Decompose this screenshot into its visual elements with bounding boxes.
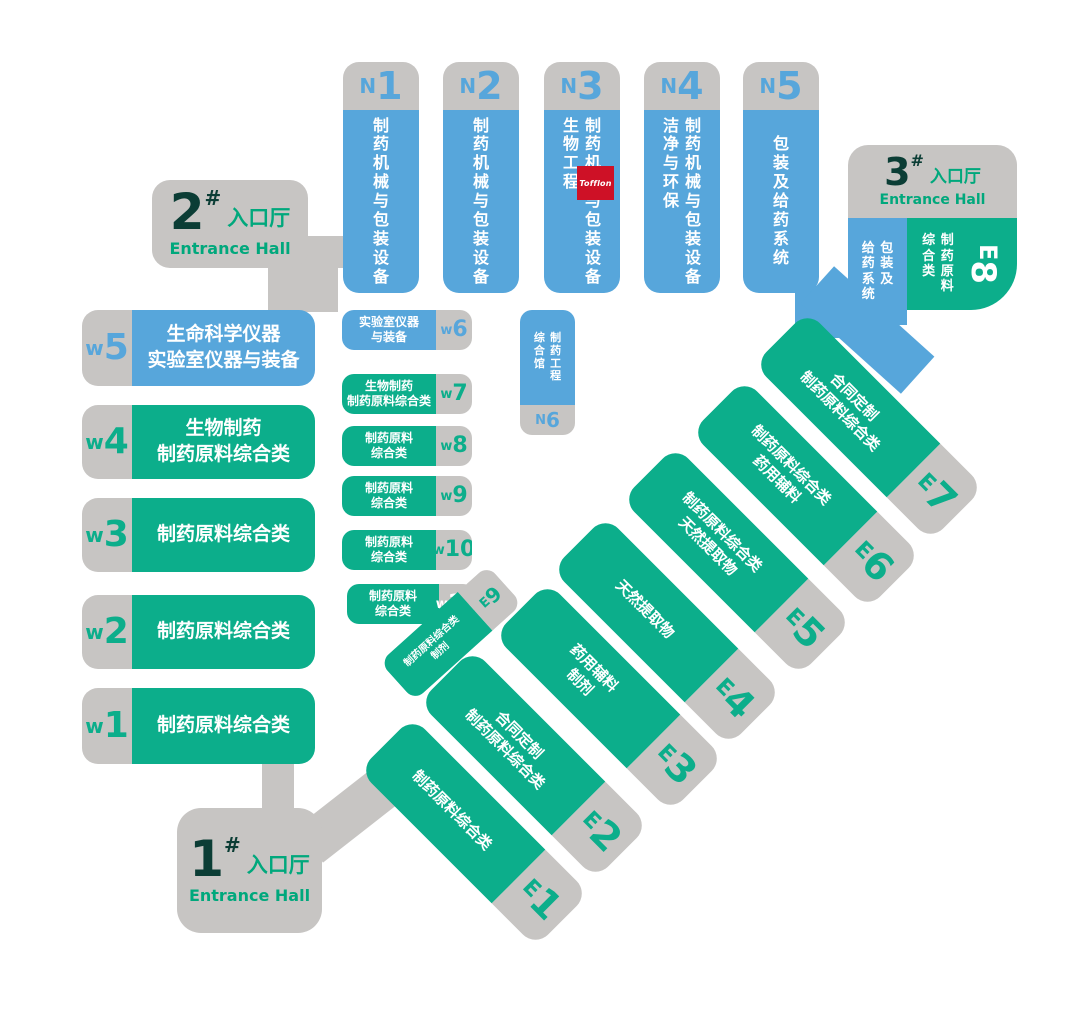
entrance-3-number: 3 xyxy=(884,155,910,189)
hall-w5-label: w5 xyxy=(82,310,132,386)
hall-w3-label: w3 xyxy=(82,498,132,572)
hall-n4-label: N4 xyxy=(644,62,720,110)
hall-w9: 制药原料综合类 w9 xyxy=(342,476,472,516)
hall-n1: N1 制药机械与包装设备 xyxy=(343,62,419,293)
hall-w3: w3 制药原料综合类 xyxy=(82,498,315,572)
tofflon-logo-text: Tofflon xyxy=(579,179,611,188)
hall-n2: N2 制药机械与包装设备 xyxy=(443,62,519,293)
hall-w7-label: w7 xyxy=(436,374,472,414)
hall-w2-label: w2 xyxy=(82,595,132,669)
hall-w7-category: 生物制药制药原料综合类 xyxy=(342,374,436,414)
hall-w6-category: 实验室仪器与装备 xyxy=(342,310,436,350)
hall-n3-category: 制药机械与包装设备生物工程 xyxy=(544,110,620,293)
hall-w9-label: w9 xyxy=(436,476,472,516)
entrance-2-number: 2 xyxy=(170,190,205,235)
hall-w9-category: 制药原料综合类 xyxy=(342,476,436,516)
hall-n2-label: N2 xyxy=(443,62,519,110)
hall-w1-category: 制药原料综合类 xyxy=(132,688,315,764)
entrance-3-hash: # xyxy=(911,153,924,169)
entrance-1-cn: 入口厅 xyxy=(247,855,310,876)
entrance-2-en: Entrance Hall xyxy=(169,239,290,258)
entrance-1-en: Entrance Hall xyxy=(189,886,310,905)
hall-w8-label: w8 xyxy=(436,426,472,466)
hall-w2-category: 制药原料综合类 xyxy=(132,595,315,669)
entrance-2-cn: 入口厅 xyxy=(227,208,290,229)
hall-n1-label: N1 xyxy=(343,62,419,110)
hall-w4-category: 生物制药制药原料综合类 xyxy=(132,405,315,479)
entrance-3-cn: 入口厅 xyxy=(930,169,981,186)
hall-w10-label: w10 xyxy=(436,530,472,570)
hall-w4: w4 生物制药制药原料综合类 xyxy=(82,405,315,479)
tofflon-logo: Tofflon xyxy=(577,166,614,200)
hall-n6-category: 制药工程综合馆 xyxy=(520,310,575,405)
hall-e8-category: 制药原料综合类 xyxy=(921,233,954,294)
entrance-2-hash: # xyxy=(205,188,222,208)
hall-e8: 制药原料综合类 E8 xyxy=(907,218,1017,310)
hall-n4: N4 制药机械与包装设备洁净与环保 xyxy=(644,62,720,293)
hall-w11-category: 制药原料综合类 xyxy=(347,584,439,624)
expo-floor-plan: N1 制药机械与包装设备 N2 制药机械与包装设备 N3 制药机械与包装设备生物… xyxy=(0,0,1080,1017)
corridor-w1-to-entrance1 xyxy=(262,760,294,812)
hall-w5-category: 生命科学仪器实验室仪器与装备 xyxy=(132,310,315,386)
entrance-1-hash: # xyxy=(224,835,241,855)
hall-n6: 制药工程综合馆 N6 xyxy=(520,310,575,435)
hall-w4-label: w4 xyxy=(82,405,132,479)
hall-e8-label: E8 xyxy=(966,244,1000,284)
hall-w1: w1 制药原料综合类 xyxy=(82,688,315,764)
hall-n1-category: 制药机械与包装设备 xyxy=(343,110,419,293)
hall-n3-label: N3 xyxy=(544,62,620,110)
hall-n2-category: 制药机械与包装设备 xyxy=(443,110,519,293)
hall-n5-label: N5 xyxy=(743,62,819,110)
hall-w10: 制药原料综合类 w10 xyxy=(342,530,472,570)
hall-w3-category: 制药原料综合类 xyxy=(132,498,315,572)
hall-w8-category: 制药原料综合类 xyxy=(342,426,436,466)
hall-e8-packaging-section: 包装及给药系统 xyxy=(848,218,907,325)
hall-n6-label: N6 xyxy=(520,405,575,435)
hall-w7: 生物制药制药原料综合类 w7 xyxy=(342,374,472,414)
hall-n5: N5 包装及给药系统 xyxy=(743,62,819,293)
hall-w8: 制药原料综合类 w8 xyxy=(342,426,472,466)
hall-w6: 实验室仪器与装备 w6 xyxy=(342,310,472,350)
hall-w6-label: w6 xyxy=(436,310,472,350)
entrance-hall-2: 2#入口厅 Entrance Hall xyxy=(152,180,308,268)
entrance-hall-3: 3#入口厅 Entrance Hall xyxy=(848,145,1017,218)
hall-w1-label: w1 xyxy=(82,688,132,764)
hall-n5-category: 包装及给药系统 xyxy=(743,110,819,293)
hall-w5: w5 生命科学仪器实验室仪器与装备 xyxy=(82,310,315,386)
entrance-3-en: Entrance Hall xyxy=(880,192,986,208)
hall-n4-category: 制药机械与包装设备洁净与环保 xyxy=(644,110,720,293)
entrance-1-number: 1 xyxy=(189,837,224,882)
hall-w10-category: 制药原料综合类 xyxy=(342,530,436,570)
hall-w2: w2 制药原料综合类 xyxy=(82,595,315,669)
entrance-hall-1: 1#入口厅 Entrance Hall xyxy=(177,808,322,933)
